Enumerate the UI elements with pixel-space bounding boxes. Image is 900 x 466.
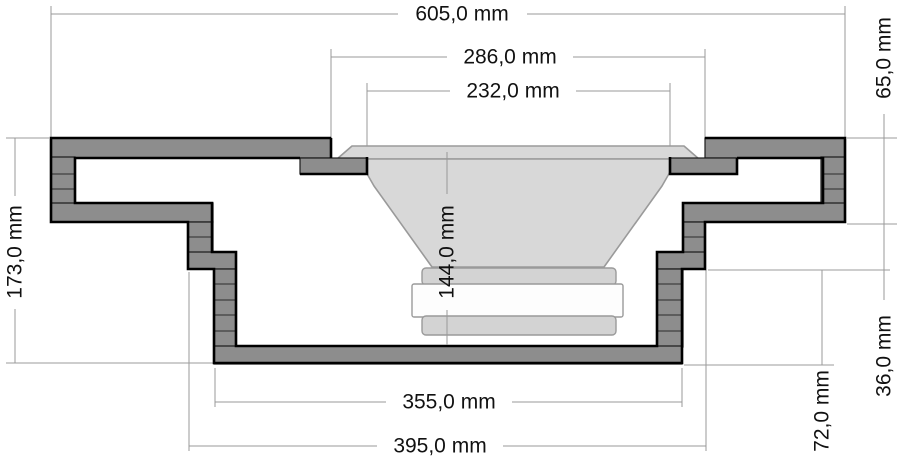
- technical-drawing-canvas: 605,0 mm 286,0 mm 232,0 mm 355,0 mm 395,…: [0, 0, 900, 466]
- dimensions: 605,0 mm 286,0 mm 232,0 mm 355,0 mm 395,…: [4, 3, 896, 458]
- speaker-driver: [337, 146, 699, 335]
- top-board-right: [705, 138, 845, 158]
- step-block-left: [188, 252, 236, 269]
- rim-floor-left: [51, 203, 213, 222]
- recess-ring-right: [670, 158, 737, 174]
- dim-label-bottom-box-width: 355,0 mm: [402, 391, 495, 414]
- speaker-enclosure-cross-section: 605,0 mm 286,0 mm 232,0 mm 355,0 mm 395,…: [0, 0, 900, 466]
- box-floor: [214, 346, 682, 364]
- dim-label-mounting-depth: 144,0 mm: [436, 205, 459, 298]
- top-board-left: [51, 138, 331, 158]
- rim-wall-right: [821, 157, 845, 204]
- dim-label-overall-height: 173,0 mm: [4, 205, 27, 298]
- dim-label-overall-width: 605,0 mm: [415, 3, 508, 26]
- rim-floor-right: [683, 203, 845, 222]
- magnet-bottom-plate: [422, 316, 616, 335]
- dim-label-bottom-box-height: 72,0 mm: [811, 370, 834, 452]
- recess-ring-left: [300, 158, 367, 174]
- dim-label-rim-height: 65,0 mm: [873, 17, 896, 99]
- rim-wall-left: [51, 157, 75, 204]
- dim-label-middle-step-height: 36,0 mm: [873, 315, 896, 397]
- dim-label-flange-recess: 286,0 mm: [463, 46, 556, 69]
- step-block-right: [657, 252, 705, 269]
- speaker-flange: [337, 146, 699, 159]
- box-wall-left: [214, 269, 236, 347]
- speaker-cone: [364, 159, 672, 267]
- dim-label-cutout: 232,0 mm: [466, 80, 559, 103]
- dim-label-middle-step-width: 395,0 mm: [393, 435, 486, 458]
- box-wall-right: [657, 269, 683, 347]
